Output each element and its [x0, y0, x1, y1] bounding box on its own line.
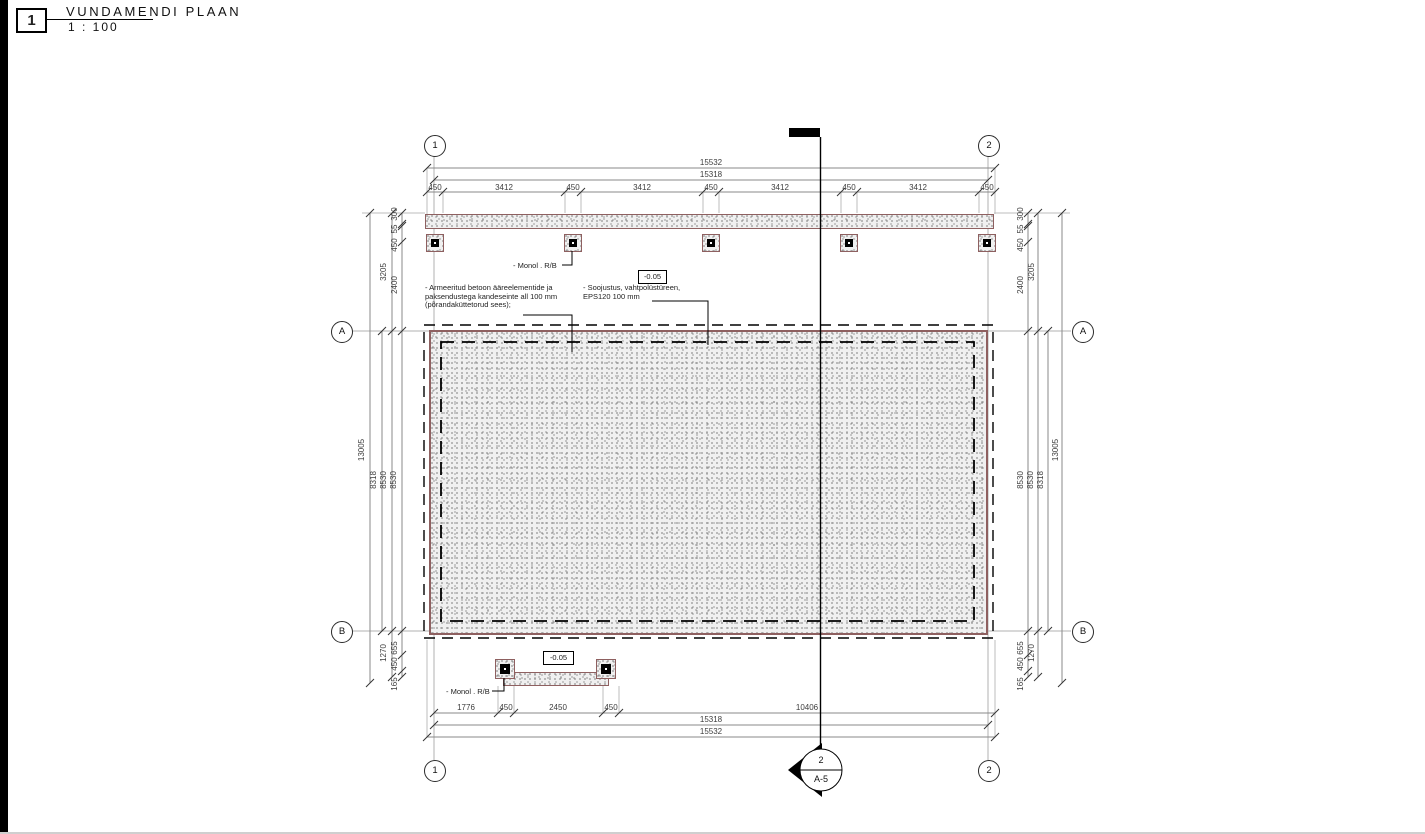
dim-label: 165	[390, 662, 400, 706]
dim-label: 3412	[750, 183, 810, 193]
dim-label: 1270	[1027, 631, 1037, 675]
dim-label: 13005	[357, 428, 367, 472]
level-tag-top: -0.05	[638, 270, 667, 284]
level-tag-bottom: -0.05	[543, 651, 574, 665]
dim-label: 8530	[1026, 458, 1036, 502]
section-cut	[788, 128, 842, 797]
dim-label: 450	[491, 703, 521, 713]
monol-label-bottom: - Monol . R/B	[446, 687, 490, 696]
dim-label: 8530	[379, 458, 389, 502]
monol-label-top: - Monol . R/B	[513, 261, 557, 270]
drawing-linework-over	[0, 0, 1425, 834]
dim-label: 15318	[681, 170, 741, 180]
grid-bubble-2-top: 2	[978, 135, 1000, 157]
view-number-box: 1	[16, 8, 47, 33]
view-scale: 1 : 100	[68, 20, 119, 34]
note-reinforced-concrete: - Armeeritud betoon ääreelementide ja pa…	[425, 284, 557, 310]
slab-outer-dashed-outline	[424, 325, 993, 638]
dim-label: 15318	[681, 715, 741, 725]
dim-label: 450	[696, 183, 726, 193]
dim-label: 450	[834, 183, 864, 193]
slab-inner-dashed-outline	[441, 342, 974, 621]
dim-label: 2400	[390, 263, 400, 307]
dim-label: 450	[972, 183, 1002, 193]
view-number: 1	[27, 12, 35, 29]
dim-label: 15532	[681, 158, 741, 168]
dim-label: 1776	[436, 703, 496, 713]
grid-bubble-1-top: 1	[424, 135, 446, 157]
drawing-sheet: 1 VUNDAMENDI PLAAN 1 : 100 1 2 1 2 A B A…	[0, 0, 1425, 834]
section-detail-number: 2	[806, 755, 836, 765]
grid-bubble-1-bottom: 1	[424, 760, 446, 782]
dim-label: 3412	[612, 183, 672, 193]
grid-bubble-B-right: B	[1072, 621, 1094, 643]
dim-label: 450	[558, 183, 588, 193]
dim-label: 450	[1016, 223, 1026, 267]
dim-label: 3412	[474, 183, 534, 193]
dim-label: 13005	[1051, 428, 1061, 472]
leader-lines	[492, 251, 708, 691]
dim-label: 3205	[1027, 250, 1037, 294]
dim-label: 8318	[369, 458, 379, 502]
section-flag-top	[789, 128, 820, 137]
dim-label: 10406	[777, 703, 837, 713]
grid-bubble-A-right: A	[1072, 321, 1094, 343]
dim-label: 165	[1016, 662, 1026, 706]
grid-bubble-2-bottom: 2	[978, 760, 1000, 782]
dim-label: 8318	[1036, 458, 1046, 502]
dim-label: 2400	[1016, 263, 1026, 307]
section-sheet-number: A-5	[806, 774, 836, 784]
dim-label: 450	[390, 223, 400, 267]
view-title: VUNDAMENDI PLAAN	[66, 4, 241, 19]
grid-bubble-B-left: B	[331, 621, 353, 643]
dim-label: 15532	[681, 727, 741, 737]
dim-label: 8530	[1016, 458, 1026, 502]
dim-label: 2450	[528, 703, 588, 713]
dim-label: 3205	[379, 250, 389, 294]
dim-label: 8530	[389, 458, 399, 502]
dim-label: 1270	[379, 631, 389, 675]
dim-label: 450	[420, 183, 450, 193]
dim-label: 450	[596, 703, 626, 713]
grid-bubble-A-left: A	[331, 321, 353, 343]
dim-label: 3412	[888, 183, 948, 193]
note-insulation: - Soojustus, vahtpolüstüreen, EPS120 100…	[583, 284, 680, 301]
